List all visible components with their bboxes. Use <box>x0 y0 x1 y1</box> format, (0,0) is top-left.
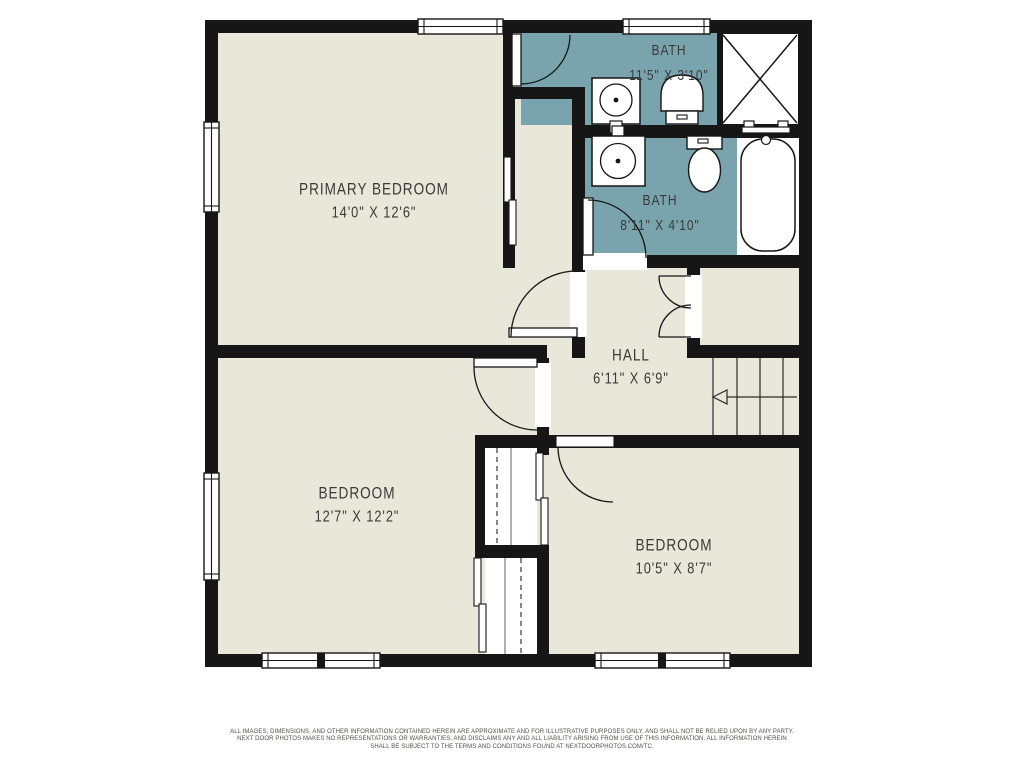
room-name: BATH <box>620 192 699 209</box>
window-left-bedroom <box>204 473 219 580</box>
room-name: BATH <box>629 42 708 59</box>
closet-lower-slider-1 <box>474 558 481 606</box>
room-dims: 14'0" X 12'6" <box>299 206 449 222</box>
bath-top-door-leaf <box>512 34 521 86</box>
hall-closet-doorway <box>685 275 702 338</box>
bedroom-left-label: BEDROOM 12'7" X 12'2" <box>315 485 400 526</box>
closet-lower-slider-2 <box>479 604 486 652</box>
bedroom-left-door-leaf <box>474 358 537 367</box>
bath-main-label: BATH 8'11" X 4'10" <box>620 192 699 234</box>
room-dims: 12'7" X 12'2" <box>315 510 400 526</box>
primary-closet-slider-2 <box>509 200 516 245</box>
bedroom-right-door-leaf <box>556 436 614 447</box>
room-name: BEDROOM <box>315 485 400 502</box>
primary-doorway <box>570 272 587 337</box>
primary-bedroom-label: PRIMARY BEDROOM 14'0" X 12'6" <box>299 181 449 222</box>
wall-hall-south <box>475 435 799 448</box>
wall-closet-west <box>475 435 485 558</box>
window-top-bath <box>623 19 710 34</box>
hall-label: HALL 6'11" X 6'9" <box>593 347 669 388</box>
window-bottom-right <box>595 653 730 668</box>
floor-plan-drawing <box>0 0 1024 768</box>
closet-upper-slider-2 <box>541 498 548 545</box>
room-dims: 6'11" X 6'9" <box>593 372 669 388</box>
room-name: PRIMARY BEDROOM <box>299 181 449 198</box>
room-name: HALL <box>593 347 669 364</box>
disclaimer: ALL IMAGES, DIMENSIONS, AND OTHER INFORM… <box>0 729 1024 751</box>
wall-hall-closet-south <box>687 345 799 358</box>
disclaimer-line-2: NEXT DOOR PHOTOS MAKES NO REPRESENTATION… <box>0 736 1024 743</box>
wall-closet-lower-east <box>537 558 549 654</box>
wall-post-primary-door <box>572 337 585 358</box>
wall-shower-partition <box>717 33 722 125</box>
room-dims: 11'5" X 3'10" <box>629 68 708 84</box>
disclaimer-line-3: SHALL BE SUBJECT TO THE TERMS AND CONDIT… <box>0 744 1024 751</box>
bath-main-door-leaf <box>583 198 593 255</box>
primary-closet-slider-1 <box>504 157 511 202</box>
closet-lower-floor <box>485 558 537 654</box>
closet-upper-slider-1 <box>536 453 543 500</box>
window-bottom-left <box>262 653 380 668</box>
toilet-main-icon <box>687 136 722 192</box>
wall-outer-top <box>205 20 812 33</box>
disclaimer-line-1: ALL IMAGES, DIMENSIONS, AND OTHER INFORM… <box>0 729 1024 736</box>
primary-door-leaf <box>509 328 577 337</box>
window-top-primary <box>418 19 503 34</box>
wall-bedroom-divider <box>205 345 547 358</box>
sink-top-icon <box>592 78 640 133</box>
wall-closet-mid <box>475 545 549 558</box>
window-left-primary <box>204 122 219 212</box>
floor-plan-page: PRIMARY BEDROOM 14'0" X 12'6" BATH 11'5"… <box>0 0 1024 768</box>
bath-top-label: BATH 11'5" X 3'10" <box>629 42 708 84</box>
bedroom-right-label: BEDROOM 10'5" X 8'7" <box>636 537 713 578</box>
room-dims: 10'5" X 8'7" <box>636 562 713 578</box>
wall-outer-right <box>799 20 812 667</box>
room-name: BEDROOM <box>636 537 713 554</box>
room-dims: 8'11" X 4'10" <box>620 218 699 234</box>
bedroom-left-doorway <box>535 363 551 427</box>
